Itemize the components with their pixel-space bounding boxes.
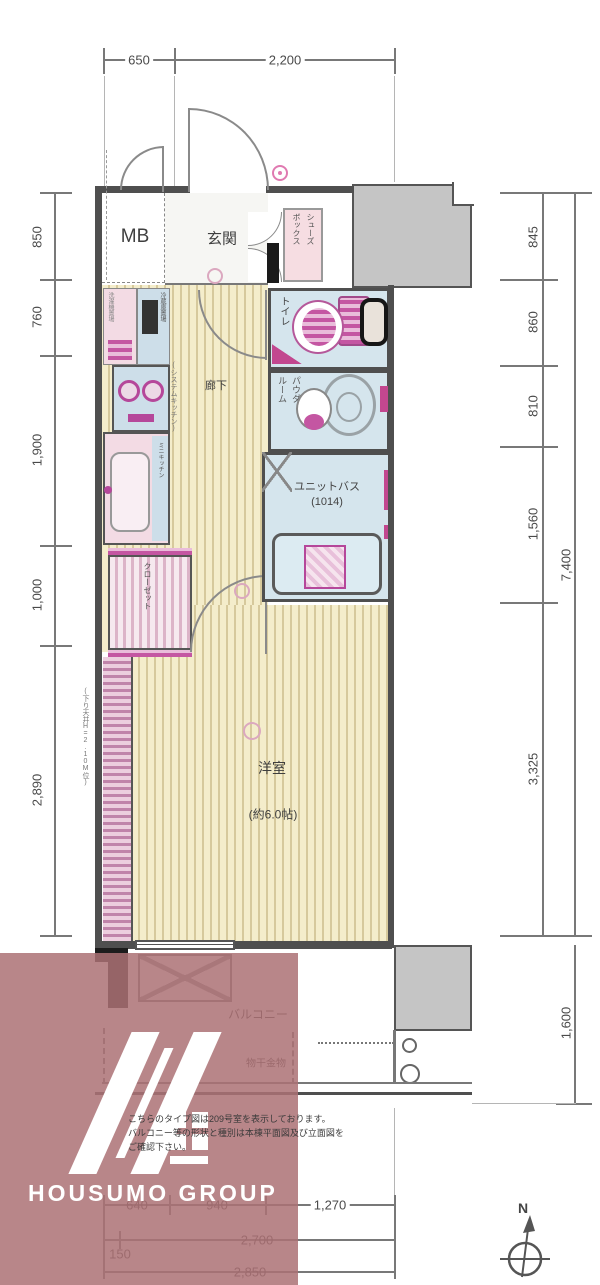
wall-hatch-strip <box>103 657 133 948</box>
dim-right-810: 810 <box>526 393 541 419</box>
floorplan-canvas: 650 2,200 850 760 1,900 1,000 2,890 845 … <box>0 0 600 1285</box>
housumo-group-wordmark: HOUSUMO GROUP <box>28 1180 278 1207</box>
ext-line <box>174 76 175 190</box>
toilet-label: トイレ <box>276 296 291 326</box>
disclaimer-note-line2: バルコニー等の形状と種別は本棟平面図及び立面図を <box>128 1126 344 1139</box>
dim-top-tick <box>394 48 396 74</box>
toilet-corner-wedge <box>272 344 302 364</box>
water-heater-icon <box>142 300 158 334</box>
wall-top-right <box>266 186 354 193</box>
corridor-door-leaf <box>265 290 267 360</box>
disclaimer-note-line3: ご確認下さい。 <box>128 1140 191 1153</box>
mb-label: MB <box>121 226 150 248</box>
mb-door-arc <box>120 146 164 190</box>
washing-machine-drum <box>336 392 362 422</box>
ceiling-light-symbol <box>207 268 223 284</box>
kitchen-strip-label: ミニキッチン <box>156 442 165 478</box>
laundry-dotted-line <box>318 1042 394 1044</box>
dim-left-tick <box>40 935 72 937</box>
inner-door-leaf <box>267 243 279 283</box>
dim-right-3325: 3,325 <box>526 751 541 788</box>
dim-left-tick <box>40 355 72 357</box>
dim-left-tick <box>40 279 72 281</box>
compass-svg: N <box>492 1183 582 1285</box>
shoebox <box>283 208 323 282</box>
dim-bottom-1270: 1,270 <box>311 1198 350 1213</box>
disclaimer-note-line1: こちらのタイプ図は209号室を表示しております。 <box>128 1112 331 1125</box>
powder-label-left: ルーム <box>276 376 289 403</box>
dim-right-845: 845 <box>526 224 541 250</box>
doorbell-symbol-dot <box>278 171 282 175</box>
entrance-door-arc <box>189 108 269 190</box>
dim-right-1560: 1,560 <box>526 506 541 543</box>
washer-label: 洗濯機置場 <box>106 292 115 322</box>
dim-balcony-line <box>574 945 576 1105</box>
balcony-post-line <box>393 1030 396 1084</box>
dim-top-650: 650 <box>125 53 153 68</box>
dim-left-2890: 2,890 <box>30 772 45 809</box>
stove-burner-icon <box>142 380 164 402</box>
logo-window-square <box>170 1156 208 1164</box>
ceiling-height-note: (下り天井H=2.10M位) <box>80 688 90 786</box>
ext-line <box>104 76 105 186</box>
dim-top-tick <box>103 48 105 74</box>
dim-right-7400: 7,400 <box>559 547 574 584</box>
compass-n-label: N <box>518 1200 528 1216</box>
dim-right-tick <box>500 192 592 194</box>
dim-right-860: 860 <box>526 309 541 335</box>
dim-left-1900: 1,900 <box>30 432 45 469</box>
dim-left-tick <box>40 545 72 547</box>
ext-line <box>394 76 395 182</box>
faucet-icon <box>104 486 112 494</box>
housumo-logo-mark <box>70 1028 270 1178</box>
dim-top-tick <box>174 48 176 74</box>
fridge-label: 冷蔵庫置場 <box>158 292 167 322</box>
dim-right-outer-line <box>574 193 576 937</box>
stove-burner-icon <box>118 380 140 402</box>
entrance-label: 玄関 <box>207 228 237 249</box>
sink-bowl <box>110 452 150 532</box>
balcony-side-block <box>394 945 472 1031</box>
dim-left-1000: 1,000 <box>30 577 45 614</box>
shoebox-label-left: ボックス <box>291 213 302 245</box>
closet-label: クローゼット <box>142 562 153 610</box>
closet-cap-top <box>108 548 192 555</box>
common-area-notch <box>452 182 474 206</box>
shoebox-label-right: シューズ <box>305 213 316 245</box>
dim-left-line <box>54 193 56 937</box>
sliding-window-rail <box>137 944 233 945</box>
dim-top-2200: 2,200 <box>266 53 305 68</box>
stove-knob <box>128 414 154 422</box>
inner-door-fan-top <box>248 212 282 246</box>
dim-left-850: 850 <box>30 224 45 250</box>
ceiling-light-symbol <box>234 583 250 599</box>
sliding-window <box>135 940 235 950</box>
connector <box>394 1195 396 1277</box>
main-room-label: 洋室 <box>258 758 286 778</box>
dim-left-760: 760 <box>30 304 45 330</box>
dim-right-tick <box>500 602 558 604</box>
entrance-door-leaf <box>188 108 190 192</box>
dim-right-tick <box>500 935 592 937</box>
corridor-label: 廊下 <box>205 377 227 393</box>
ceiling-light-symbol <box>243 722 261 740</box>
dim-left-tick <box>40 192 72 194</box>
dim-balcony-1600: 1,600 <box>559 1005 574 1042</box>
dim-left-tick <box>40 645 72 647</box>
wall-right <box>388 285 394 948</box>
dim-right-tick <box>500 279 558 281</box>
mb-meter-dashed-line <box>106 150 107 280</box>
wall-left <box>95 186 102 948</box>
washbasin-bowl <box>304 414 324 430</box>
unit-bath-size: (1014) <box>311 496 343 508</box>
bathtub-drain <box>304 545 346 589</box>
wall-bottom-right <box>235 941 392 949</box>
ext-line <box>472 1103 576 1104</box>
toilet-seat <box>302 308 336 346</box>
unit-bath-label: ユニットバス <box>294 478 360 494</box>
mb-door-leaf <box>162 146 164 192</box>
bath-door-fold <box>262 452 292 492</box>
washer-pan <box>108 340 132 360</box>
dim-right-inner-line <box>542 193 544 937</box>
ext-line <box>394 1108 395 1196</box>
closet-cap-bottom <box>108 650 192 657</box>
balcony-drain-circle <box>400 1064 420 1084</box>
toilet-paper-holder <box>360 298 388 346</box>
dim-right-tick <box>500 446 558 448</box>
dim-right-tick <box>500 365 558 367</box>
main-room-size-label: (約6.0帖) <box>249 806 298 823</box>
balcony-drain-circle <box>402 1038 417 1053</box>
compass-arrowhead <box>523 1215 535 1233</box>
compass: N <box>492 1183 582 1285</box>
